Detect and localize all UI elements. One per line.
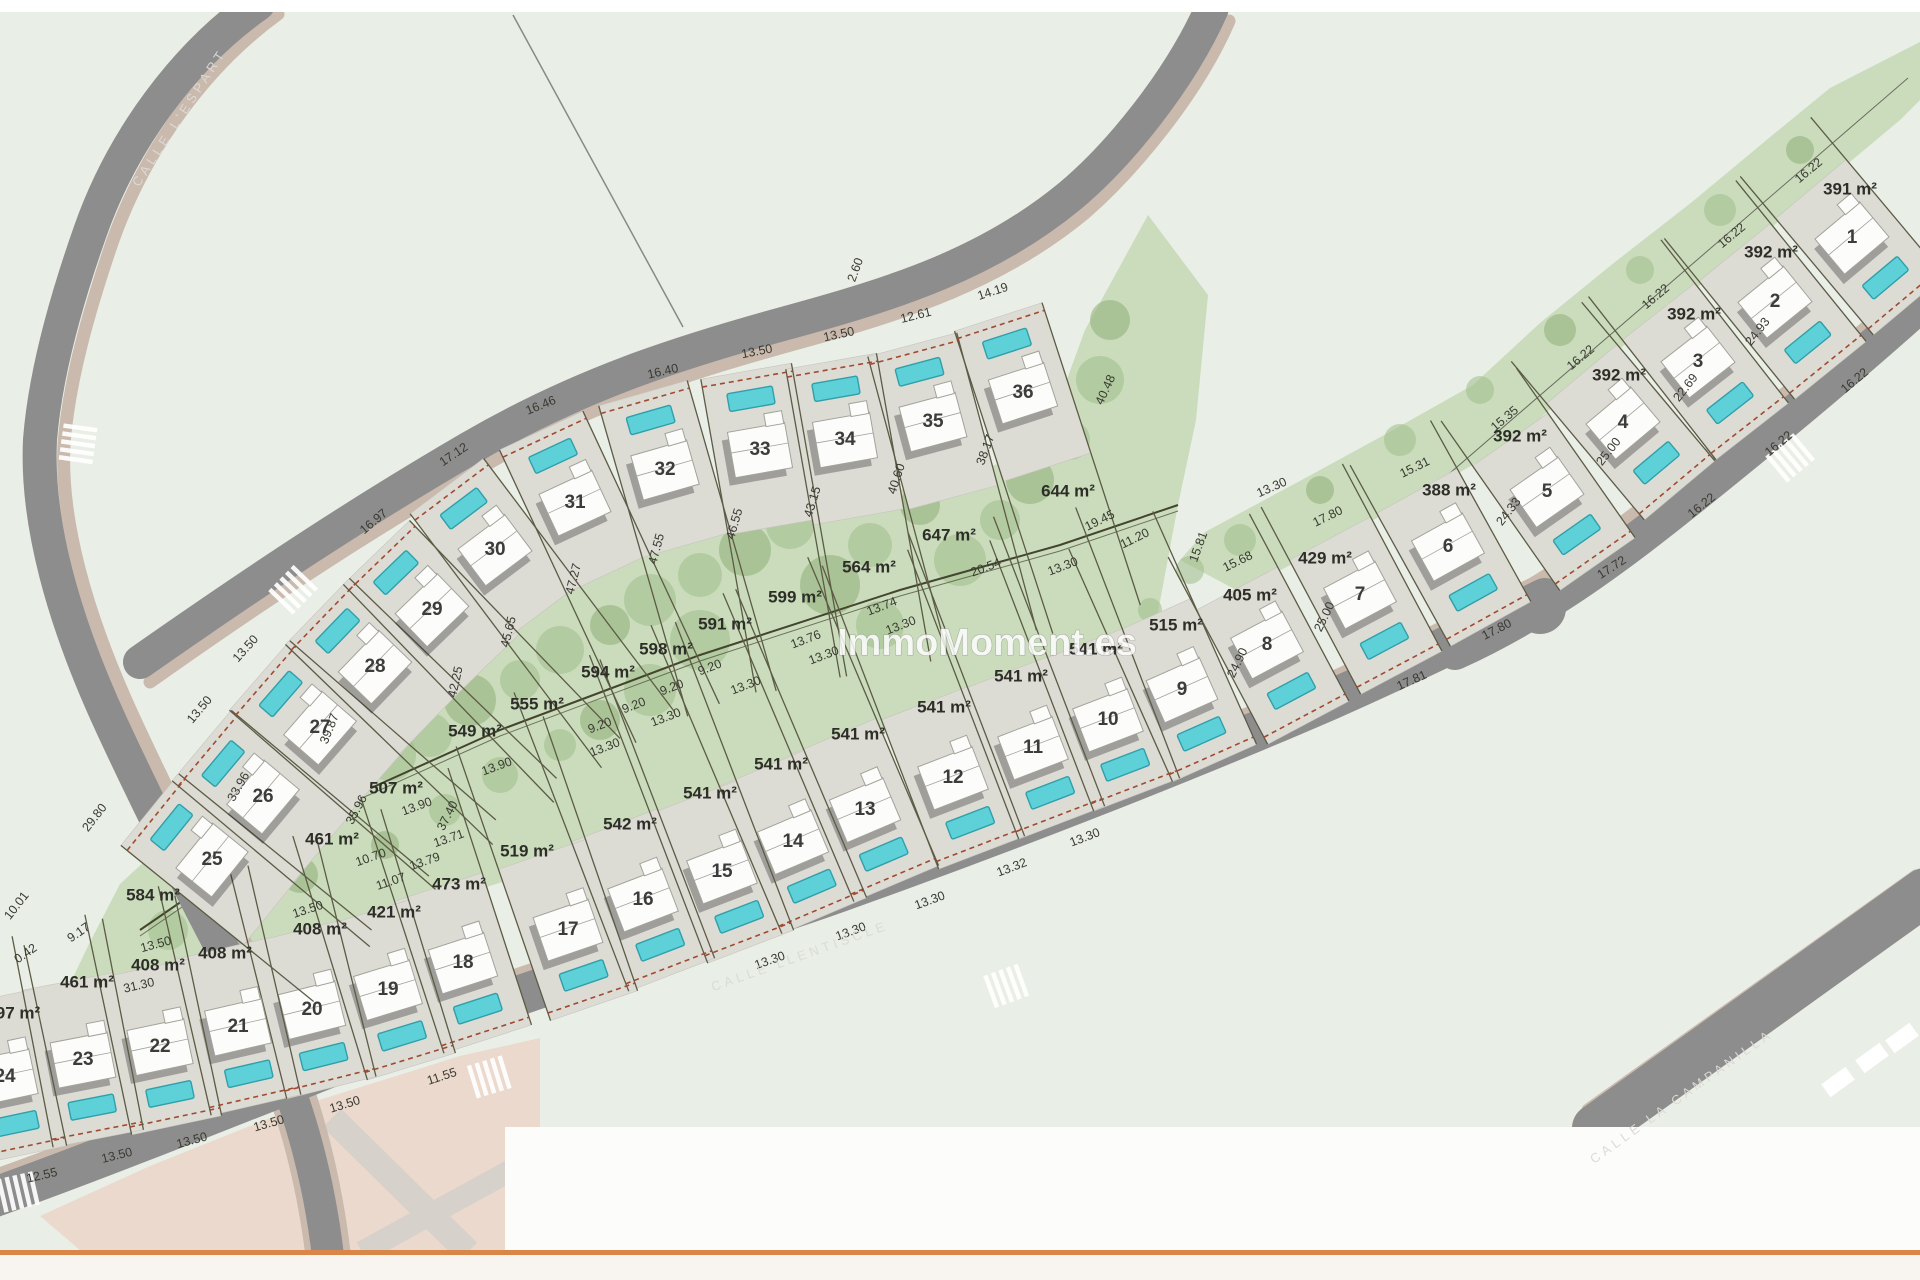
plot-number: 23 — [72, 1049, 93, 1070]
plot-number: 20 — [301, 999, 322, 1020]
plot-number: 29 — [421, 599, 442, 620]
plot-number: 2 — [1770, 291, 1781, 312]
area-label: 405 m² — [1223, 585, 1277, 604]
area-label: 647 m² — [922, 525, 976, 544]
tree-icon — [1384, 424, 1416, 456]
plot-number: 4 — [1618, 412, 1629, 433]
area-label: 541 m² — [831, 724, 885, 743]
plot-number: 10 — [1097, 709, 1118, 730]
plot-number: 25 — [201, 849, 223, 870]
plot-number: 16 — [632, 889, 653, 910]
area-label: 591 m² — [698, 614, 752, 633]
plot-number: 1 — [1847, 227, 1858, 248]
house-wing — [764, 411, 784, 427]
plot-number: 15 — [711, 861, 733, 882]
watermark: ImmoMoment.es — [837, 622, 1137, 664]
area-label: 97 m² — [0, 1003, 41, 1022]
area-label: 584 m² — [126, 885, 180, 904]
area-label: 555 m² — [510, 694, 564, 713]
plot-number: 11 — [1023, 737, 1044, 758]
area-label: 549 m² — [448, 721, 502, 740]
area-label: 392 m² — [1744, 242, 1798, 261]
tree-icon — [1544, 314, 1576, 346]
plot-number: 17 — [557, 919, 578, 940]
bottom-strip — [0, 1255, 1920, 1280]
tree-icon — [1466, 376, 1494, 404]
area-label: 461 m² — [305, 829, 359, 848]
area-label: 542 m² — [603, 814, 657, 833]
area-label: 408 m² — [293, 919, 347, 938]
area-label: 599 m² — [768, 587, 822, 606]
area-label: 594 m² — [581, 662, 635, 681]
area-label: 541 m² — [917, 697, 971, 716]
plot-number: 21 — [227, 1016, 249, 1037]
tree-icon — [536, 626, 584, 674]
site-plan: 1234567891011121314151617181920212223242… — [0, 0, 1920, 1280]
area-label: 507 m² — [369, 778, 423, 797]
plot-number: 9 — [1177, 679, 1188, 700]
plot-number: 31 — [564, 492, 586, 513]
tree-icon — [624, 574, 676, 626]
plot-number: 6 — [1443, 536, 1454, 557]
area-label: 541 m² — [994, 666, 1048, 685]
area-label: 408 m² — [131, 955, 185, 974]
tree-icon — [1090, 300, 1130, 340]
plot-number: 7 — [1355, 584, 1366, 605]
tree-icon — [1306, 476, 1334, 504]
plot-number: 28 — [364, 656, 385, 677]
plot-number: 26 — [252, 786, 273, 807]
plot-number: 35 — [922, 411, 944, 432]
area-label: 541 m² — [754, 754, 808, 773]
bottom-white-band — [505, 1127, 1920, 1252]
tree-icon — [678, 553, 722, 597]
house-wing — [86, 1020, 106, 1036]
plot-number: 5 — [1542, 481, 1553, 502]
site-plan-page: 1234567891011121314151617181920212223242… — [0, 0, 1920, 1280]
plot-number: 19 — [377, 979, 398, 1000]
plot-number: 36 — [1012, 382, 1033, 403]
plot-number: 12 — [942, 767, 963, 788]
plot-number: 13 — [854, 799, 875, 820]
orange-border-line — [0, 1250, 1920, 1255]
area-label: 644 m² — [1041, 481, 1095, 500]
tree-icon — [1224, 524, 1256, 556]
area-label: 564 m² — [842, 557, 896, 576]
plot-number: 8 — [1262, 634, 1273, 655]
plot-number: 32 — [654, 459, 675, 480]
plot-number: 3 — [1693, 351, 1704, 372]
plot-number: 33 — [749, 439, 770, 460]
area-label: 473 m² — [432, 874, 486, 893]
plot-number: 14 — [782, 831, 804, 852]
area-label: 408 m² — [198, 943, 252, 962]
area-label: 392 m² — [1493, 426, 1547, 445]
tree-icon — [590, 605, 630, 645]
plot-number: 22 — [149, 1036, 170, 1057]
house-wing — [849, 401, 869, 417]
tree-icon — [1704, 194, 1736, 226]
area-label: 598 m² — [639, 639, 693, 658]
plot-number: 30 — [484, 539, 505, 560]
area-label: 519 m² — [500, 841, 554, 860]
area-label: 392 m² — [1592, 365, 1646, 384]
plot-number: 18 — [452, 952, 473, 973]
area-label: 391 m² — [1823, 179, 1877, 198]
top-white-strip — [0, 0, 1920, 12]
area-label: 429 m² — [1298, 548, 1352, 567]
plot-number: 34 — [834, 429, 856, 450]
tree-icon — [1626, 256, 1654, 284]
area-label: 392 m² — [1667, 304, 1721, 323]
area-label: 461 m² — [60, 972, 114, 991]
area-label: 541 m² — [683, 783, 737, 802]
area-label: 421 m² — [367, 902, 421, 921]
plot-number: 24 — [0, 1066, 16, 1087]
area-label: 388 m² — [1422, 480, 1476, 499]
area-label: 515 m² — [1149, 615, 1203, 634]
